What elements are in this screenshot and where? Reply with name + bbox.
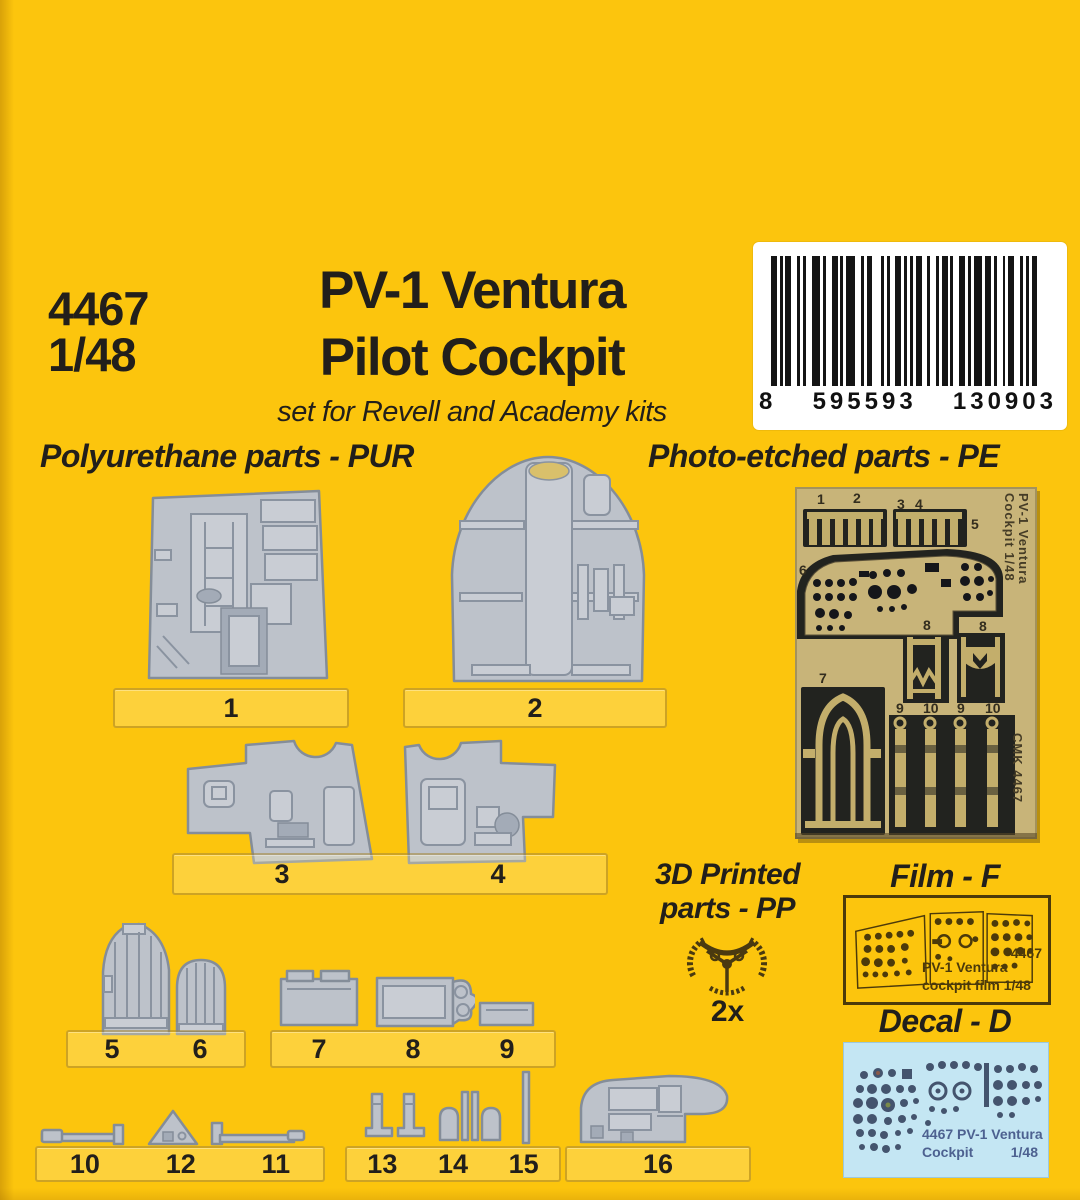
part-number-15: 15 — [509, 1149, 539, 1180]
pe-number-10a: 10 — [923, 701, 939, 715]
part-label-bar-10-12-11: 10 12 11 — [35, 1146, 325, 1182]
part-number-2: 2 — [527, 693, 542, 724]
barcode-group1: 595593 — [813, 388, 917, 416]
decal-section-heading: Decal - D — [845, 1003, 1045, 1040]
pur-part-5-illustration — [95, 918, 180, 1038]
barcode: 8 595593 130903 — [753, 242, 1067, 430]
part-number-4: 4 — [490, 859, 505, 890]
part-label-bar-13-14-15: 13 14 15 — [345, 1146, 561, 1182]
pp-section-heading: 3D Printed parts - PP — [630, 858, 825, 926]
pur-part-3-illustration — [182, 735, 387, 867]
pur-part-8-illustration — [373, 968, 475, 1030]
film-image: 4467 PV-1 Ventura cockpit film 1/48 — [843, 895, 1051, 1005]
part-label-bar-5-6: 5 6 — [66, 1030, 246, 1068]
pur-part-11-illustration — [208, 1120, 310, 1148]
pe-number-5: 5 — [971, 517, 979, 531]
catalog-number-block: 4467 1/48 — [48, 286, 149, 378]
part-label-bar-16: 16 — [565, 1146, 751, 1182]
pur-part-16-illustration — [573, 1072, 735, 1146]
product-subtitle: set for Revell and Academy kits — [232, 396, 712, 429]
pur-part-1-illustration — [133, 486, 333, 686]
decal-image: 4467 PV-1 Ventura Cockpit 1/48 — [843, 1042, 1049, 1178]
barcode-bars — [771, 256, 1049, 386]
pur-part-10-illustration — [38, 1122, 138, 1148]
pe-number-10b: 10 — [985, 701, 1001, 715]
pur-part-15-illustration — [520, 1070, 532, 1146]
part-number-7: 7 — [311, 1034, 326, 1065]
pe-number-9b: 9 — [957, 701, 965, 715]
product-title-line1: PV-1 Ventura — [232, 258, 712, 325]
part-number-6: 6 — [192, 1034, 207, 1065]
film-label-number: 4467 — [1011, 946, 1042, 960]
pur-part-13-illustration — [362, 1090, 426, 1142]
pe-number-8a: 8 — [923, 618, 931, 632]
pe-number-4: 4 — [915, 497, 923, 511]
pe-number-6: 6 — [799, 563, 807, 577]
pur-part-2-illustration — [432, 447, 664, 687]
barcode-digit: 8 — [759, 388, 776, 416]
film-label-line2: cockpit film 1/48 — [922, 978, 1031, 992]
pp-yoke-illustration — [682, 930, 772, 1000]
pe-number-3: 3 — [897, 497, 905, 511]
decal-label-line2: Cockpit — [922, 1145, 973, 1159]
pp-quantity: 2x — [630, 995, 825, 1029]
pur-part-9-illustration — [478, 1000, 536, 1028]
decal-label-scale: 1/48 — [1011, 1145, 1038, 1159]
film-section-heading: Film - F — [845, 858, 1045, 895]
pur-section-heading: Polyurethane parts - PUR — [40, 438, 414, 475]
part-number-13: 13 — [367, 1149, 397, 1180]
pe-number-7: 7 — [819, 671, 827, 685]
product-title-line2: Pilot Cockpit — [232, 325, 712, 392]
part-number-12: 12 — [166, 1149, 196, 1180]
pe-maker-text: CMK 4467 — [1011, 733, 1024, 803]
part-number-11: 11 — [262, 1149, 291, 1180]
film-label-line1: PV-1 Ventura — [922, 960, 1008, 974]
part-number-3: 3 — [274, 859, 289, 890]
barcode-number: 8 595593 130903 — [753, 386, 1067, 416]
pe-side-text-line1: PV-1 Ventura — [1017, 493, 1030, 584]
part-label-bar-1: 1 — [113, 688, 349, 728]
pur-part-7-illustration — [277, 965, 361, 1029]
part-number-16: 16 — [643, 1149, 673, 1180]
part-label-bar-3-4: 3 4 — [172, 853, 608, 895]
pe-number-2: 2 — [853, 491, 861, 505]
part-number-1: 1 — [223, 693, 238, 724]
barcode-group2: 130903 — [953, 388, 1057, 416]
pe-side-text-line2: Cockpit 1/48 — [1003, 493, 1016, 582]
decal-label-line1: 4467 PV-1 Ventura — [922, 1127, 1043, 1141]
catalog-scale: 1/48 — [48, 332, 149, 378]
pur-part-6-illustration — [172, 950, 230, 1038]
title-block: PV-1 Ventura Pilot Cockpit set for Revel… — [232, 258, 712, 429]
pur-part-4-illustration — [395, 735, 563, 867]
pe-fret-photo: 1 2 3 4 5 6 8 8 7 9 10 9 10 PV-1 Ventura… — [795, 487, 1037, 839]
pe-fret-graphic — [795, 487, 1037, 839]
pur-part-12-illustration — [145, 1106, 201, 1148]
catalog-number: 4467 — [48, 286, 149, 332]
pe-number-1: 1 — [817, 492, 825, 506]
part-number-14: 14 — [438, 1149, 468, 1180]
pur-part-14-illustration — [430, 1088, 502, 1144]
part-number-10: 10 — [70, 1149, 100, 1180]
pe-number-8b: 8 — [979, 619, 987, 633]
pe-number-9a: 9 — [896, 701, 904, 715]
pe-section-heading: Photo-etched parts - PE — [648, 438, 999, 475]
part-label-bar-2: 2 — [403, 688, 667, 728]
pp-heading-line2: parts - PP — [630, 892, 825, 926]
pp-heading-line1: 3D Printed — [630, 858, 825, 892]
part-number-9: 9 — [499, 1034, 514, 1065]
part-label-bar-7-8-9: 7 8 9 — [270, 1030, 556, 1068]
part-number-5: 5 — [104, 1034, 119, 1065]
part-number-8: 8 — [405, 1034, 420, 1065]
